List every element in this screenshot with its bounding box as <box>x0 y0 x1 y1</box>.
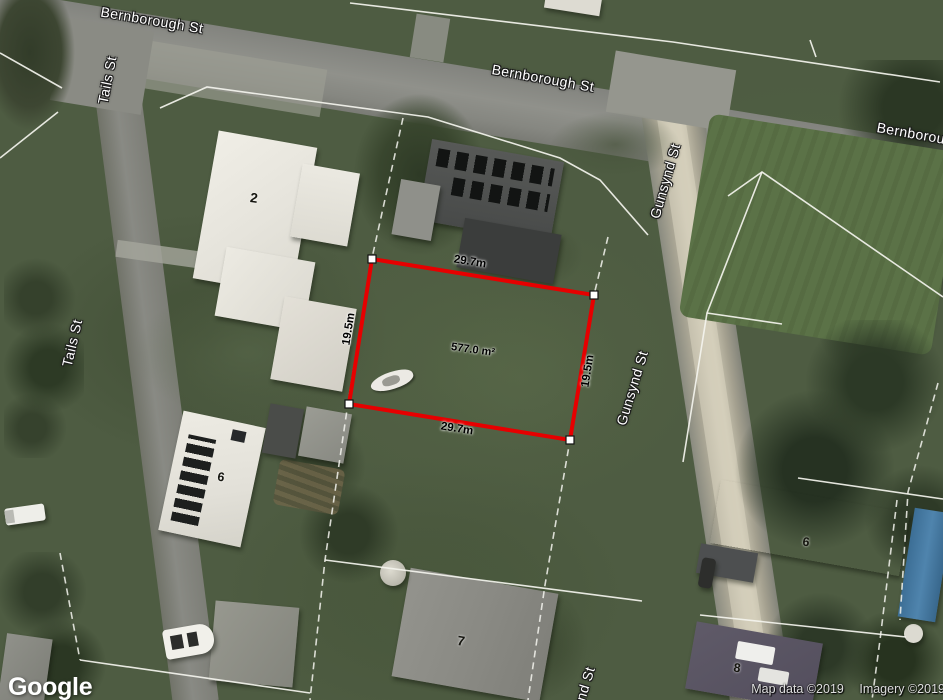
map-attribution: Map data ©2019 Imagery ©2019 <box>751 682 943 696</box>
parcel-line-right-horizontal <box>798 478 943 499</box>
boundary-corner-handle-ne[interactable] <box>590 291 598 299</box>
parcel-line-bottom-right <box>700 615 906 637</box>
google-logo[interactable]: Google <box>8 673 92 700</box>
house-number-2: 2 <box>249 190 259 206</box>
parcel-line-mid-dashed-east <box>528 237 608 700</box>
parcel-line-gunsynd-east-front <box>683 172 762 462</box>
parcel-line-bottom-mid <box>325 560 642 601</box>
parcel-line-gunsynd-corner-east <box>728 172 943 297</box>
parcel-tick-north <box>810 40 816 57</box>
boundary-corner-handle-nw[interactable] <box>368 255 376 263</box>
parcel-line-bottom-left-fence <box>80 660 310 693</box>
attribution-map-data: Map data ©2019 <box>751 682 844 696</box>
parcel-line-north-bernborough <box>350 3 940 82</box>
boundary-corner-handle-se[interactable] <box>566 436 574 444</box>
parcel-line-east-branch <box>707 313 782 324</box>
parcel-line-topleft-edge <box>0 53 62 88</box>
parcel-line-tails-west <box>0 112 58 158</box>
attribution-imagery: Imagery ©2019 <box>859 682 943 696</box>
parcel-line-bottomright-dashed <box>872 500 897 700</box>
boundary-corner-handle-sw[interactable] <box>345 400 353 408</box>
parcel-line-left-dashed <box>60 553 80 660</box>
satellite-map[interactable]: 29.7m 29.7m 19.5m 19.5m 577.0 m² Bernbor… <box>0 0 943 700</box>
parcel-line-front-south-bernborough <box>160 87 648 235</box>
parcel-line-right-dashed <box>900 383 938 620</box>
house-number-7: 7 <box>456 633 466 649</box>
